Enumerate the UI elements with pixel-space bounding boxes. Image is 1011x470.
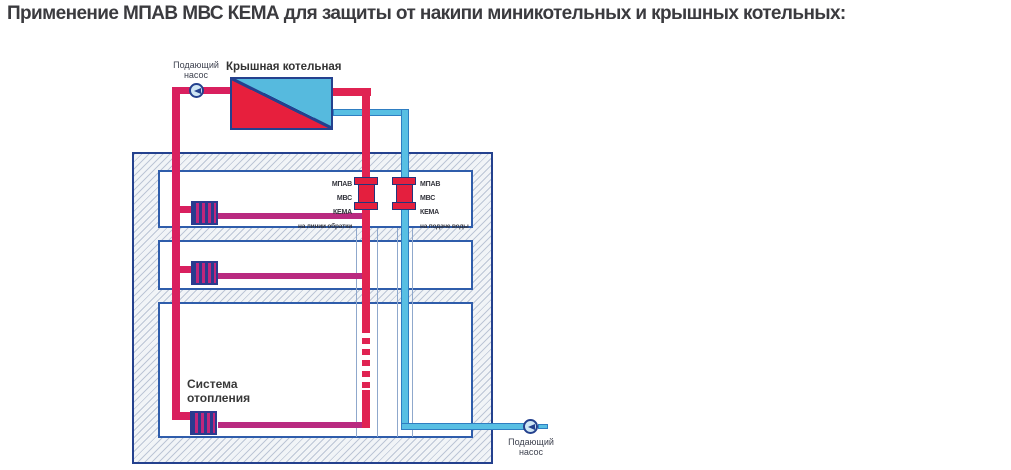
spool-flange-bottom (354, 202, 378, 210)
pump-triangle-icon (528, 424, 535, 430)
radiator-floor-1 (191, 201, 218, 225)
pipe-return-riser-lower (362, 390, 370, 428)
pipe-supply-bottom-horizontal (401, 423, 526, 430)
pipe-return-floor-3 (218, 422, 370, 428)
rooftop-boiler-label: Крышная котельная (226, 61, 342, 73)
pipe-return-riser-dash (362, 327, 370, 333)
pipe-return-riser-dash (362, 382, 370, 388)
mpav-return-label: МПАВ МВС КЕМА на линии обратки (264, 174, 352, 237)
mpav-device-return-line (354, 177, 378, 210)
pump-icon-top (189, 83, 204, 98)
mpav-device-supply-line (392, 177, 416, 210)
mpav-return-label-line4: на линии обратки (264, 223, 352, 230)
spool-flange-bottom (392, 202, 416, 210)
mpav-return-label-line2: МВС (264, 195, 352, 202)
return-riser-shaft-left-line (356, 228, 357, 437)
supply-riser-shaft-right-line (412, 228, 413, 437)
radiator-floor-2 (191, 261, 218, 285)
mpav-return-label-line3: КЕМА (264, 209, 352, 216)
page-title: Применение МПАВ МВС КЕМА для защиты от н… (7, 3, 1007, 25)
diagram-canvas: Применение МПАВ МВС КЕМА для защиты от н… (0, 0, 1011, 470)
return-riser-shaft-right-line (377, 228, 378, 437)
pipe-return-riser-dash (362, 371, 370, 377)
pipe-supply-pump-stub (538, 424, 548, 429)
mpav-supply-label-line3: КЕМА (420, 209, 512, 216)
mpav-supply-label-line1: МПАВ (420, 181, 512, 188)
pump-triangle-icon (194, 88, 201, 94)
radiator-floor-3 (190, 411, 217, 435)
mpav-supply-label-line2: МВС (420, 195, 512, 202)
pipe-boiler-to-supply-riser (333, 109, 409, 116)
mpav-supply-label: МПАВ МВС КЕМА на подаче воды (420, 174, 512, 237)
supply-pump-bottom-label: Подающий насос (488, 437, 574, 457)
mpav-supply-label-line4: на подаче воды (420, 223, 512, 230)
pump-icon-bottom (523, 419, 538, 434)
heating-system-label: Система отопления (187, 378, 250, 405)
pipe-left-riser (172, 87, 180, 420)
spool-body (396, 184, 413, 203)
pipe-return-riser-dash (362, 349, 370, 355)
pipe-return-riser-dash (362, 338, 370, 344)
pipe-supply-riser (401, 109, 409, 430)
rooftop-boiler (230, 77, 333, 130)
supply-pump-top-label: Подающий насос (158, 60, 234, 80)
mpav-return-label-line1: МПАВ (264, 181, 352, 188)
spool-body (358, 184, 375, 203)
pipe-return-riser-dash (362, 360, 370, 366)
pipe-return-floor-2 (218, 273, 370, 279)
pipe-left-riser-elbow-floor3 (172, 412, 191, 420)
supply-riser-shaft-left-line (397, 228, 398, 437)
